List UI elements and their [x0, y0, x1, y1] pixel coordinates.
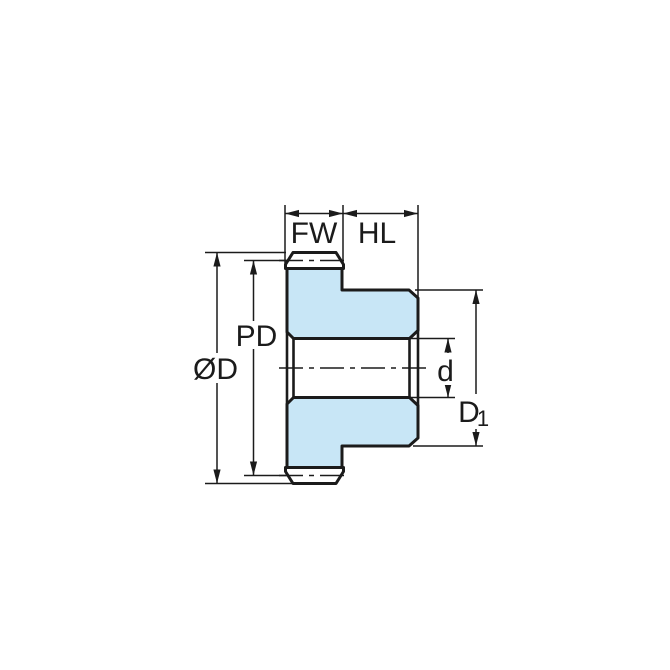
- hl-label: HL: [358, 217, 396, 250]
- diagram-canvas: FW HL ØD PD d D 1: [0, 0, 670, 670]
- fw-label: FW: [291, 217, 338, 250]
- gear-body-upper-section: [287, 269, 418, 339]
- gear-cross-section-drawing: FW HL ØD PD d D 1: [0, 0, 670, 670]
- gear-body-lower-section: [287, 398, 418, 468]
- d1-label-subscript: 1: [477, 406, 489, 431]
- od-label: ØD: [193, 353, 238, 386]
- d-label: d: [437, 355, 454, 388]
- pd-label: PD: [236, 320, 278, 353]
